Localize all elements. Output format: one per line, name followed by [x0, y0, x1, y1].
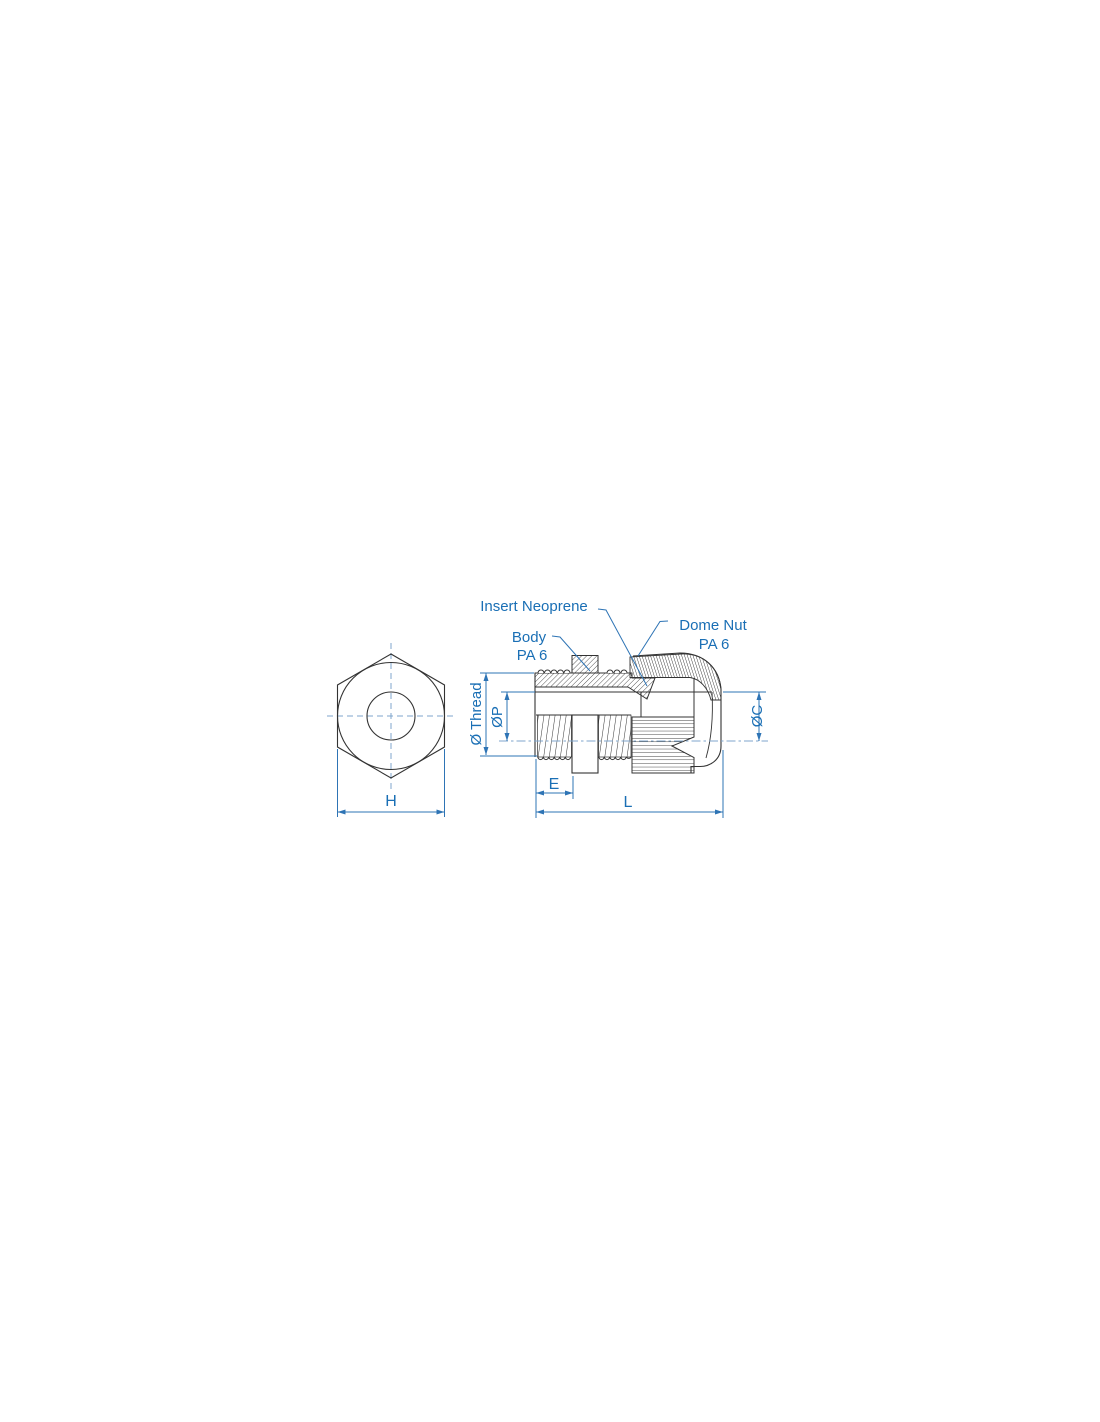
hex-front-view: H: [327, 643, 455, 817]
l-arrow-left: [536, 810, 544, 815]
external-thread-left: [538, 715, 572, 760]
dome-nut-leader: [638, 621, 668, 656]
c-arrow-up: [757, 692, 762, 700]
gland-dimension-drawing: H: [0, 0, 1100, 1422]
label-dome-nut: Dome Nut: [679, 617, 747, 634]
dim-label-c: ØC: [749, 705, 766, 728]
dim-label-l: L: [624, 794, 633, 811]
dim-label-thread: Ø Thread: [468, 682, 485, 745]
label-body: Body: [512, 629, 547, 646]
body-hex-flange-section: [572, 656, 598, 674]
p-arrow-up: [505, 692, 510, 700]
dim-label-e: E: [549, 776, 560, 793]
page: H: [0, 0, 1100, 1422]
p-arrow-down: [505, 733, 510, 741]
dim-label-h: H: [385, 793, 397, 810]
side-section-view: Ø Thread ØP ØC E L Ins: [468, 598, 768, 818]
e-arrow-left: [536, 791, 544, 796]
body-hex-flange-external: [572, 715, 598, 773]
label-body-material: PA 6: [517, 647, 548, 664]
dim-label-p: ØP: [489, 706, 506, 728]
dome-nut-inner-face: [706, 692, 712, 758]
dome-nut-knurl: [632, 717, 694, 773]
h-arrow-right: [437, 810, 445, 815]
thread-arrow-down: [484, 747, 489, 755]
label-insert-neoprene: Insert Neoprene: [480, 598, 588, 615]
label-dome-nut-material: PA 6: [699, 636, 730, 653]
external-thread-right: [599, 715, 632, 760]
e-arrow-right: [565, 791, 573, 796]
h-arrow-left: [338, 810, 346, 815]
c-arrow-down: [757, 733, 762, 741]
thread-arrow-up: [484, 673, 489, 681]
l-arrow-right: [715, 810, 723, 815]
